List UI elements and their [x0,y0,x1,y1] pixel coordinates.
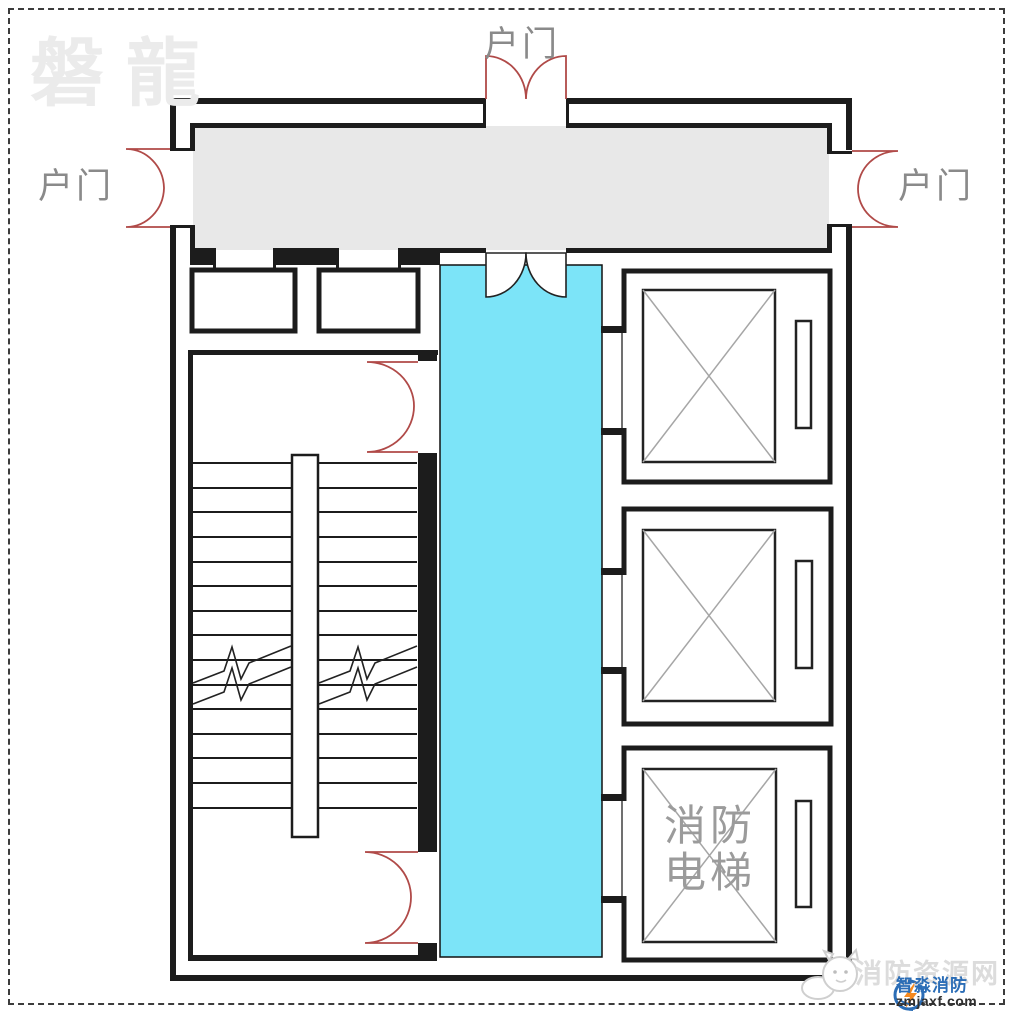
stair-treads-left [193,463,291,808]
brand-name: 智淼消防 [896,977,977,994]
door-swing-right [852,151,898,227]
floor-plan-page: 磐龍 户门 户门 户门 消防 电梯 消防资源网 智淼消防 zmjaxf.com [0,0,1013,1013]
fire-elevator-label: 消防 电梯 [649,802,771,896]
stair-treads-right [319,463,417,808]
door-label-right: 户门 [898,158,974,209]
door-swing-stair-lower [365,852,418,943]
corridor-highlight [440,265,602,957]
brand-logo: 智淼消防 zmjaxf.com [893,977,977,1009]
door-label-left: 户门 [38,158,114,209]
elevator-shaft-1 [601,271,830,482]
elevator-shaft-2 [601,509,831,724]
door-swing-left [126,149,170,227]
watermark-panlong: 磐龍 [30,14,222,121]
fire-elevator-label-line2: 电梯 [649,849,771,896]
floor-plan-drawing [0,0,1013,1013]
door-swing-stair-upper [367,362,418,452]
elevator-hall [190,123,832,265]
fire-elevator-label-line1: 消防 [649,802,771,849]
door-label-top: 户门 [484,16,560,67]
stair-divider [292,455,318,837]
brand-site: zmjaxf.com [896,994,977,1009]
